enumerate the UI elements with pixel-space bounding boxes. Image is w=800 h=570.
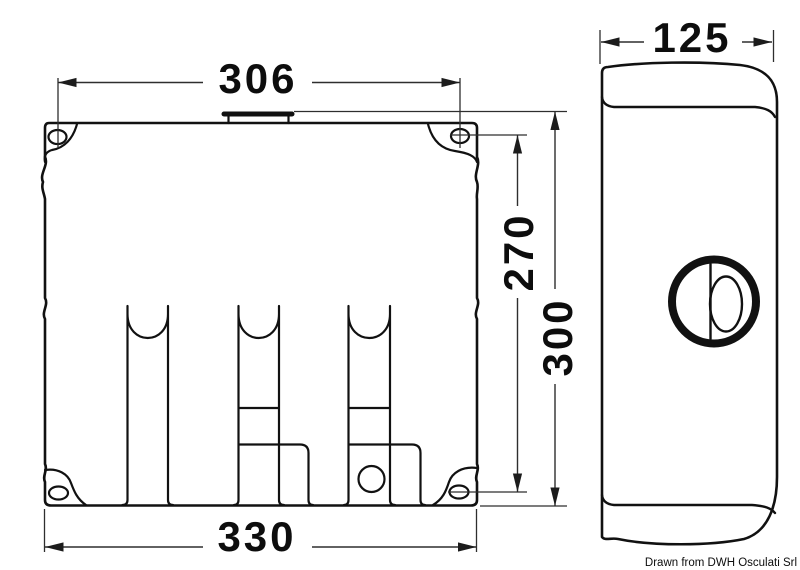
front-view — [42, 114, 478, 506]
dim-300-label: 300 — [534, 297, 581, 376]
drain-boss — [359, 466, 385, 492]
tank-outline — [42, 123, 478, 506]
dim-125-label: 125 — [652, 14, 731, 61]
dim-306-label: 306 — [218, 55, 297, 102]
technical-drawing-page: 306 330 270 300 125 Drawn from DWH Oscul… — [0, 0, 800, 570]
dimensions — [45, 30, 774, 552]
dim-270-label: 270 — [495, 212, 542, 291]
groove-2 — [234, 306, 313, 505]
outlet-ring — [672, 260, 756, 344]
side-outline — [602, 63, 777, 545]
outlet-spout — [710, 277, 742, 332]
credit-text: Drawn from DWH Osculati Srl — [645, 557, 797, 569]
side-bottom-seam — [602, 495, 775, 513]
groove-1 — [123, 306, 174, 505]
grooves — [123, 306, 426, 505]
dim-330-label: 330 — [217, 513, 296, 560]
tank-technical-drawing: 306 330 270 300 125 Drawn from DWH Oscul… — [0, 0, 800, 570]
mounting-tabs — [45, 124, 477, 505]
dimension-labels: 306 330 270 300 125 — [217, 14, 731, 560]
side-view — [602, 63, 777, 545]
mounting-hole-bottom-left — [49, 487, 68, 500]
tab-top-right — [428, 124, 477, 162]
side-top-seam — [602, 97, 775, 117]
outlet-fitting — [672, 260, 756, 344]
filler-cap — [224, 114, 292, 123]
ext-lines — [45, 30, 774, 552]
